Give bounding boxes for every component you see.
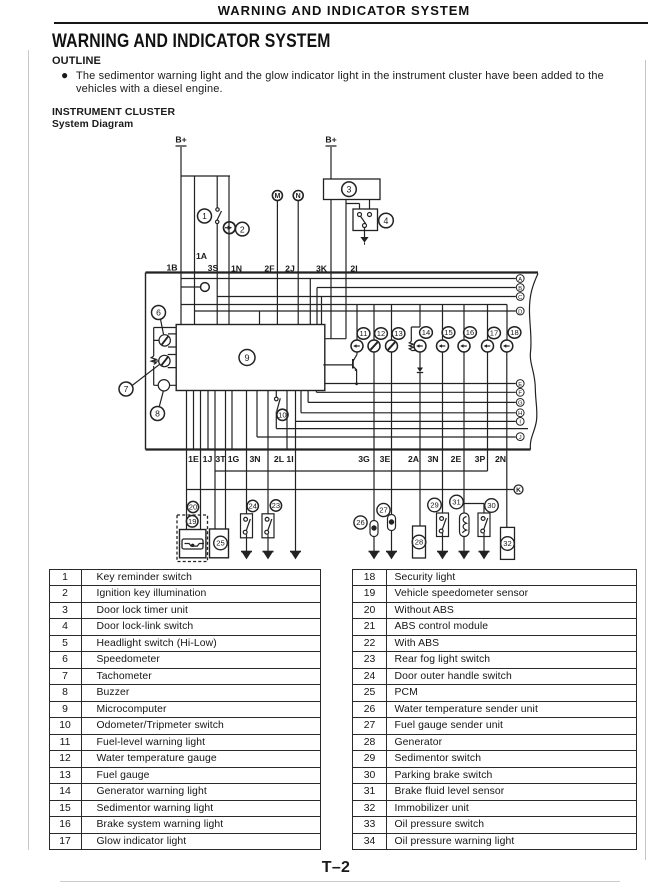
svg-text:1B: 1B	[166, 263, 177, 273]
svg-text:1J: 1J	[203, 454, 213, 464]
svg-text:A: A	[518, 277, 522, 283]
svg-text:K: K	[516, 487, 521, 494]
svg-text:E: E	[518, 382, 522, 388]
svg-text:B+: B+	[175, 135, 186, 145]
svg-text:3N: 3N	[249, 454, 260, 464]
svg-text:3E: 3E	[380, 454, 391, 464]
svg-text:2L: 2L	[274, 454, 285, 464]
svg-text:2I: 2I	[350, 264, 357, 274]
svg-text:17: 17	[490, 329, 498, 338]
svg-text:18: 18	[510, 328, 518, 337]
svg-text:3G: 3G	[358, 454, 370, 464]
svg-text:2A: 2A	[408, 454, 420, 464]
svg-text:G: G	[518, 401, 523, 407]
svg-text:31: 31	[452, 498, 460, 507]
svg-text:H: H	[518, 411, 522, 417]
svg-text:M: M	[274, 193, 280, 200]
svg-text:15: 15	[444, 328, 452, 337]
svg-text:23: 23	[272, 501, 280, 510]
svg-text:1A: 1A	[196, 251, 208, 261]
svg-text:2F: 2F	[264, 264, 274, 274]
svg-text:7: 7	[124, 384, 129, 394]
svg-text:16: 16	[466, 328, 474, 337]
svg-text:32: 32	[503, 539, 511, 548]
svg-text:20: 20	[189, 503, 197, 512]
svg-text:1: 1	[202, 211, 207, 221]
svg-text:1G: 1G	[228, 454, 240, 464]
svg-text:J: J	[519, 435, 522, 441]
svg-text:6: 6	[156, 308, 161, 318]
svg-text:3P: 3P	[475, 454, 486, 464]
svg-text:2N: 2N	[495, 454, 506, 464]
svg-text:1E: 1E	[188, 454, 199, 464]
svg-text:N: N	[296, 193, 301, 200]
svg-text:3S: 3S	[208, 263, 219, 273]
svg-text:D: D	[518, 309, 522, 315]
svg-text:F: F	[518, 391, 522, 397]
svg-text:13: 13	[394, 329, 402, 338]
svg-text:C: C	[518, 295, 522, 301]
svg-text:B+: B+	[325, 135, 336, 145]
svg-text:1N: 1N	[231, 264, 242, 274]
svg-text:24: 24	[248, 502, 256, 511]
svg-text:B: B	[518, 286, 522, 292]
svg-text:26: 26	[356, 518, 364, 527]
svg-text:25: 25	[216, 539, 224, 548]
svg-text:12: 12	[377, 329, 385, 338]
svg-text:2: 2	[240, 224, 245, 234]
svg-text:2E: 2E	[451, 454, 462, 464]
svg-text:11: 11	[360, 329, 368, 338]
svg-text:14: 14	[422, 328, 430, 337]
svg-text:29: 29	[430, 501, 438, 510]
svg-text:19: 19	[188, 517, 196, 526]
svg-text:3K: 3K	[316, 264, 328, 274]
svg-text:27: 27	[379, 506, 387, 515]
svg-text:28: 28	[415, 538, 423, 547]
svg-text:4: 4	[384, 216, 389, 226]
svg-text:30: 30	[487, 501, 495, 510]
svg-text:9: 9	[244, 353, 249, 363]
svg-text:2J: 2J	[285, 264, 295, 274]
svg-text:3N: 3N	[427, 454, 438, 464]
svg-text:10: 10	[278, 410, 286, 419]
svg-text:3: 3	[347, 185, 352, 195]
svg-text:1I: 1I	[286, 454, 293, 464]
svg-text:8: 8	[155, 409, 160, 419]
svg-text:3T: 3T	[215, 454, 226, 464]
